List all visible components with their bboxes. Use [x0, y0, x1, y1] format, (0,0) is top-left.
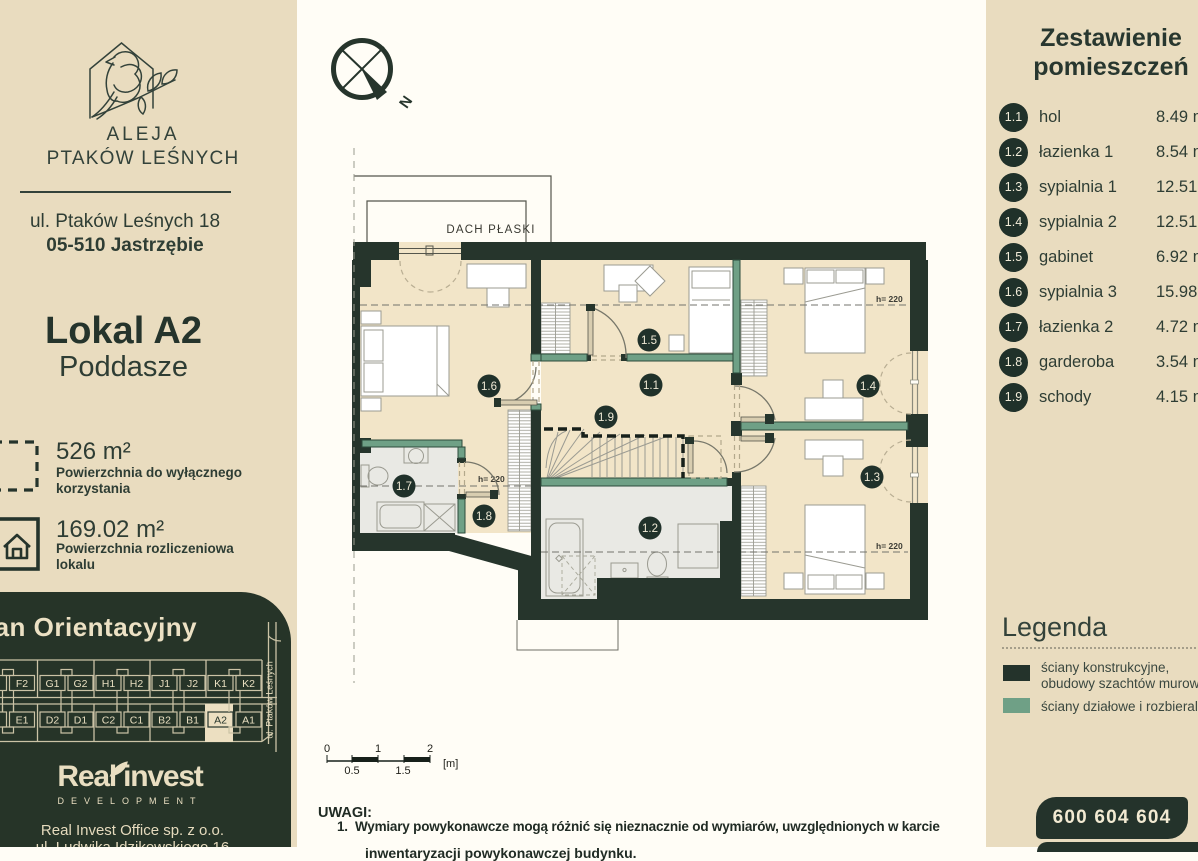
svg-text:1.5: 1.5: [395, 765, 410, 777]
svg-text:1.2: 1.2: [642, 523, 658, 535]
svg-text:[m]: [m]: [443, 758, 458, 770]
svg-text:N: N: [395, 92, 415, 111]
svg-text:h= 220: h= 220: [876, 294, 903, 304]
svg-text:0.5: 0.5: [344, 765, 359, 777]
svg-text:h= 220: h= 220: [876, 541, 903, 551]
svg-text:1.4: 1.4: [860, 381, 877, 393]
svg-text:2: 2: [427, 743, 433, 755]
svg-text:0: 0: [324, 743, 330, 755]
svg-text:1.1: 1.1: [643, 380, 659, 392]
svg-text:1.8: 1.8: [476, 511, 492, 523]
svg-text:1.9: 1.9: [598, 412, 614, 424]
svg-text:1.3: 1.3: [864, 472, 880, 484]
svg-text:1.5: 1.5: [641, 335, 657, 347]
svg-text:1: 1: [375, 743, 381, 755]
svg-text:1.7: 1.7: [396, 481, 412, 493]
svg-text:1.6: 1.6: [481, 381, 497, 393]
svg-text:DACH PŁASKI: DACH PŁASKI: [446, 224, 535, 236]
